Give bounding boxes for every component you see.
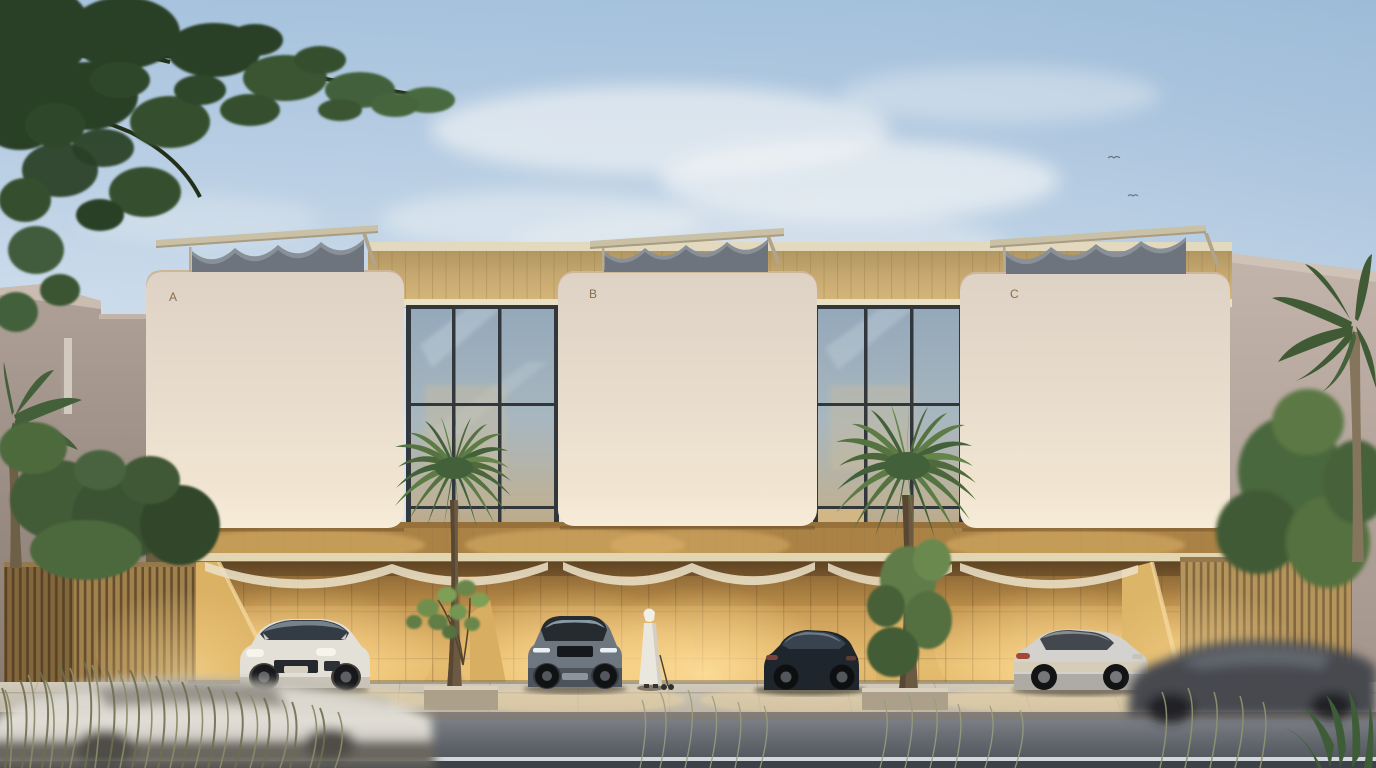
svg-text:C: C [1010, 287, 1019, 301]
svg-text:A: A [169, 290, 177, 304]
svg-text:B: B [589, 287, 597, 301]
